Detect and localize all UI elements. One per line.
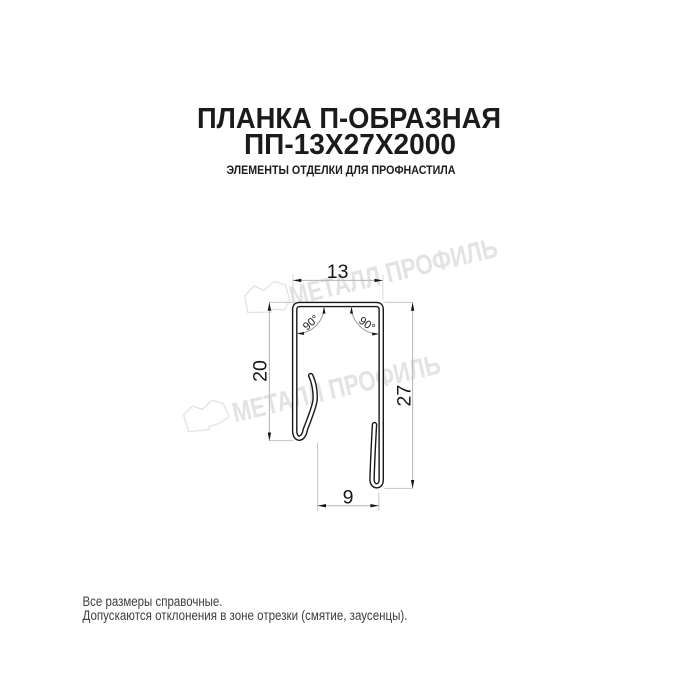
svg-text:ЭЛЕМЕНТЫ ОТДЕЛКИ ДЛЯ ПРОФНАСТИ: ЭЛЕМЕНТЫ ОТДЕЛКИ ДЛЯ ПРОФНАСТИЛА <box>227 163 456 177</box>
svg-text:Все размеры справочные.: Все размеры справочные. <box>83 594 223 609</box>
svg-text:13: 13 <box>327 261 349 283</box>
svg-text:ПП-13Х27Х2000: ПП-13Х27Х2000 <box>244 129 456 161</box>
svg-text:Допускаются отклонения в зоне: Допускаются отклонения в зоне отрезки (с… <box>83 608 408 623</box>
svg-text:9: 9 <box>343 487 354 509</box>
svg-text:90°: 90° <box>301 313 322 333</box>
svg-text:20: 20 <box>250 360 272 382</box>
svg-text:90°: 90° <box>356 315 377 334</box>
svg-text:27: 27 <box>394 385 416 407</box>
svg-text:МЕТАЛЛ ПРОФИЛЬ: МЕТАЛЛ ПРОФИЛЬ <box>286 232 500 312</box>
